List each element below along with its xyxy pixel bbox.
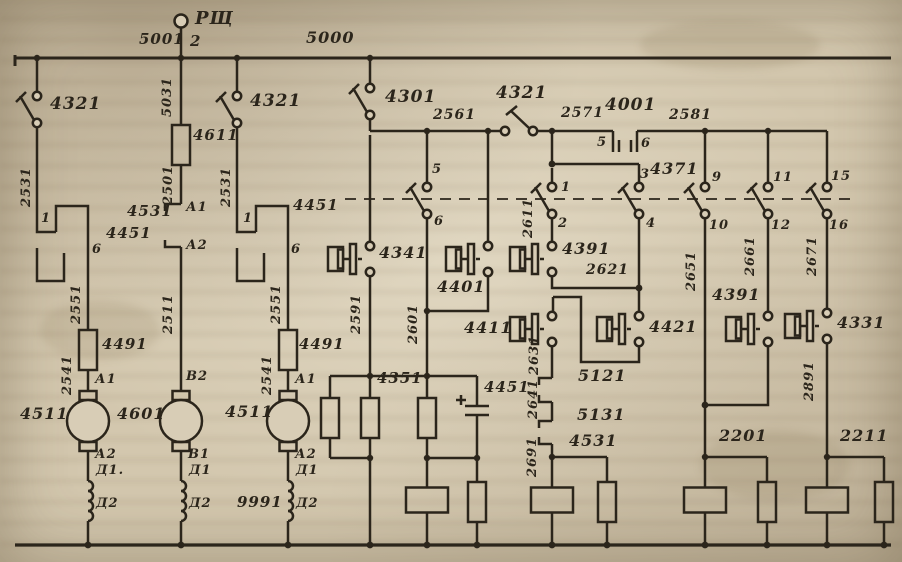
resistor-icon — [758, 482, 776, 522]
junction-dot — [764, 542, 771, 549]
junction-dot — [34, 55, 40, 61]
control-feed — [349, 58, 827, 152]
resistor-icon — [361, 398, 379, 438]
branch-4401 — [427, 131, 492, 311]
contact-5131-lower — [539, 437, 552, 444]
junction-dot — [636, 285, 643, 292]
contactor-4391-right-icon — [726, 312, 772, 346]
resistor-icon — [468, 482, 486, 522]
reactor-coil-icon — [88, 481, 93, 521]
gang-switch-15-16-icon — [806, 183, 831, 218]
junction-dot — [702, 542, 709, 549]
branch-motor-4511-right — [216, 58, 309, 545]
schematic-page: РЩ50012500043214321430143212561257140012… — [0, 0, 902, 562]
relay-coil-2211-icon — [806, 488, 848, 513]
plug-contact-lower — [237, 248, 264, 281]
gang-switch-3-4-icon — [618, 183, 643, 218]
branch-switch-3-4 — [553, 164, 643, 362]
relay-coil-2201-icon — [684, 488, 726, 513]
resistor-4491-icon — [79, 330, 97, 370]
knife-switch-4321-icon — [16, 92, 41, 127]
knife-switch-4321-icon — [216, 92, 241, 127]
gang-switch-11-12-icon — [747, 183, 772, 218]
schematic-drawing — [0, 0, 902, 562]
junction-dot — [424, 455, 430, 461]
junction-dot — [424, 542, 431, 549]
junction-dot — [702, 454, 708, 460]
contact-4001-left-prong — [613, 131, 619, 152]
junction-dot — [702, 128, 708, 134]
contact-4531-upper — [165, 204, 181, 211]
branch-switch-15-16 — [785, 131, 893, 545]
branch-switch-11-12 — [705, 131, 772, 405]
rsch-terminal-icon — [175, 15, 188, 28]
junction-dot — [367, 373, 373, 379]
contactor-4341-icon — [328, 242, 374, 276]
contact-5121-upper — [539, 378, 552, 385]
resistor-icon — [321, 398, 339, 438]
contactor-4411-icon — [510, 312, 556, 346]
resistor-4531-icon — [598, 482, 616, 522]
rail-4351 — [321, 376, 489, 545]
contact-4001-right-prong — [631, 131, 637, 152]
resistor-4611-icon — [172, 125, 190, 165]
junction-dot — [367, 542, 374, 549]
junction-dot — [765, 128, 771, 134]
junction-dot — [85, 542, 92, 549]
contact-5121-lower — [539, 395, 552, 402]
junction-dot — [824, 454, 830, 460]
junction-dot — [424, 373, 430, 379]
junction-dot — [549, 128, 555, 134]
contactor-4401-icon — [446, 242, 492, 276]
gang-switch-1-2-icon — [531, 183, 556, 218]
contact-5131-upper — [539, 421, 552, 428]
motor-4511-icon — [267, 391, 309, 451]
motor-4511-icon — [67, 391, 109, 451]
branch-switch-9-10 — [684, 131, 776, 545]
junction-dot — [549, 454, 555, 460]
junction-dot — [474, 542, 481, 549]
junction-dot — [178, 542, 185, 549]
resistor-icon — [418, 398, 436, 438]
contact-4531-lower — [165, 240, 181, 247]
junction-dot — [367, 55, 373, 61]
junction-dot — [824, 542, 831, 549]
gang-switch-5-6-icon — [406, 183, 431, 218]
junction-dot — [549, 542, 556, 549]
junction-dots — [34, 55, 888, 549]
junction-dot — [604, 542, 611, 549]
junction-dot — [881, 542, 888, 549]
junction-dot — [234, 55, 240, 61]
resistor-icon — [875, 482, 893, 522]
junction-dot — [367, 455, 373, 461]
junction-dot — [549, 161, 556, 168]
junction-dot — [285, 542, 292, 549]
junction-dot — [474, 455, 480, 461]
reactor-coil-icon — [288, 481, 293, 521]
motor-4601-icon — [160, 391, 202, 451]
knife-switch-4301-icon — [349, 84, 374, 119]
resistor-4491-icon — [279, 330, 297, 370]
rsch-feeder — [175, 15, 188, 126]
reactor-coil-icon — [181, 481, 186, 521]
top-bus — [15, 55, 891, 66]
junction-dot — [178, 55, 184, 61]
branch-motor-4511-left — [16, 58, 109, 545]
capacitor-4451-icon — [456, 376, 489, 415]
relay-coil-icon — [406, 488, 448, 513]
branch-motor-4601 — [160, 125, 202, 545]
gang-switch-9-10-icon — [684, 183, 709, 218]
branch-switch-5-6 — [406, 131, 431, 376]
plug-contact-upper — [256, 206, 288, 234]
contactor-4421-icon — [597, 312, 643, 346]
relay-coil-icon — [531, 488, 573, 513]
junction-dot — [424, 128, 430, 134]
junction-dot — [702, 402, 709, 409]
contactor-4331-icon — [785, 309, 831, 343]
knife-switch-4321-horizontal-icon — [501, 106, 537, 135]
junction-dot — [485, 128, 491, 134]
contactor-4391-left-icon — [510, 242, 556, 276]
plug-contact-upper — [56, 206, 88, 234]
junction-dot — [424, 308, 430, 314]
branch-4341 — [328, 135, 374, 376]
plug-contact-lower — [37, 248, 64, 281]
